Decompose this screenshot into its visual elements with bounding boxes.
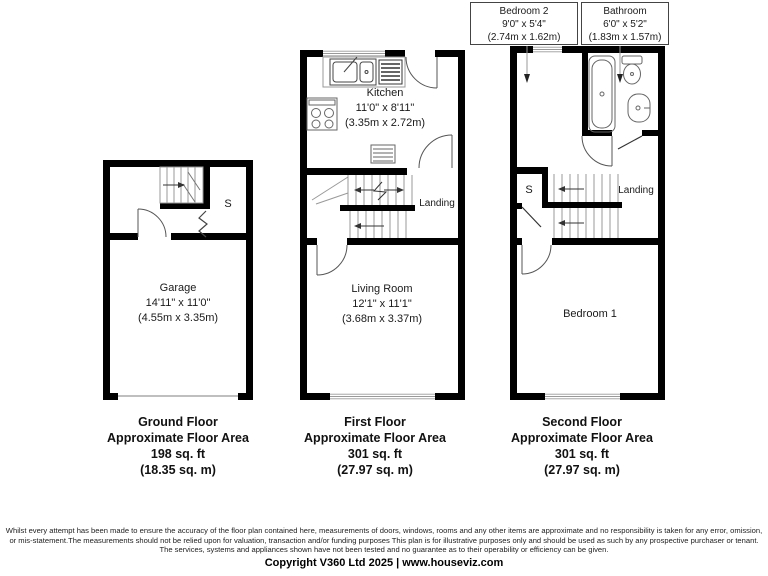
kitchen-landing-door-icon — [419, 135, 452, 168]
bedroom2-window — [533, 47, 562, 52]
appliance-icon — [371, 145, 395, 163]
kitchen-dims-metric: (3.35m x 2.72m) — [345, 117, 425, 129]
bathroom-callout-name: Bathroom — [582, 5, 668, 18]
first-floor-title: First Floor — [275, 414, 475, 430]
ground-floor-area-metric: (18.35 sq. m) — [78, 462, 278, 478]
garage-entry-door-icon — [138, 209, 166, 237]
kitchen-room-label: Kitchen 11'0" x 8'11" (3.35m x 2.72m) — [345, 87, 425, 129]
bedroom1-door-icon — [522, 245, 551, 274]
first-floor-summary: First Floor Approximate Floor Area 301 s… — [275, 414, 475, 478]
second-floor-walls — [510, 46, 665, 400]
angled-door-leaf — [618, 136, 642, 149]
ground-floor-summary: Ground Floor Approximate Floor Area 198 … — [78, 414, 278, 478]
living-room-door-icon — [317, 245, 347, 275]
bedroom2-callout-dims-imperial: 9'0" x 5'4" — [471, 18, 577, 31]
first-floor-area-metric: (27.97 sq. m) — [275, 462, 475, 478]
kitchen-window — [323, 51, 385, 56]
bathroom-callout-dims-imperial: 6'0" x 5'2" — [582, 18, 668, 31]
second-floor-area-metric: (27.97 sq. m) — [482, 462, 682, 478]
disclaimer-line-3: The services, systems and appliances sho… — [0, 545, 768, 555]
second-floor-plan: S Landing Bedroom 1 — [510, 46, 665, 400]
ground-floor-title: Ground Floor — [78, 414, 278, 430]
kitchen-dims-imperial: 11'0" x 8'11" — [356, 102, 415, 114]
hob-icon — [307, 98, 337, 130]
kitchen-entry-door-icon — [406, 57, 437, 88]
ground-floor-subtitle: Approximate Floor Area — [78, 430, 278, 446]
second-floor-summary: Second Floor Approximate Floor Area 301 … — [482, 414, 682, 478]
bedroom2-callout-name: Bedroom 2 — [471, 5, 577, 18]
first-floor-area-imperial: 301 sq. ft — [275, 446, 475, 462]
bedroom2-callout: Bedroom 2 9'0" x 5'4" (2.74m x 1.62m) — [470, 2, 578, 45]
living-room-name: Living Room — [351, 283, 412, 295]
ground-floor-walls — [103, 160, 253, 400]
living-room-label: Living Room 12'1" x 11'1" (3.68m x 3.37m… — [342, 283, 422, 325]
bedroom1-window — [545, 394, 620, 399]
disclaimer-line-1: Whilst every attempt has been made to en… — [0, 526, 768, 536]
living-room-dims-imperial: 12'1" x 11'1" — [352, 298, 412, 310]
garage-dims-imperial: 14'11" x 11'0" — [146, 297, 211, 309]
garage-dims-metric: (4.55m x 3.35m) — [138, 312, 218, 324]
ground-store-label: S — [224, 198, 231, 210]
kitchen-drainer-icon — [379, 60, 402, 84]
bathtub-icon — [589, 56, 615, 132]
second-floor-subtitle: Approximate Floor Area — [482, 430, 682, 446]
bedroom1-label: Bedroom 1 — [563, 308, 617, 320]
copyright-text: Copyright V360 Ltd 2025 | www.houseviz.c… — [0, 557, 768, 569]
ground-floor-area-imperial: 198 sq. ft — [78, 446, 278, 462]
bedroom2-callout-dims-metric: (2.74m x 1.62m) — [471, 31, 577, 44]
garage-room-label: Garage 14'11" x 11'0" (4.55m x 3.35m) — [138, 282, 218, 324]
washbasin-icon — [628, 94, 650, 122]
second-store-label: S — [525, 184, 532, 196]
second-floor-area-imperial: 301 sq. ft — [482, 446, 682, 462]
bathroom-callout: Bathroom 6'0" x 5'2" (1.83m x 1.57m) — [581, 2, 669, 45]
kitchen-sink-icon — [330, 57, 376, 85]
living-room-window — [330, 394, 435, 399]
store-door-leaf — [522, 207, 541, 227]
bathroom-door-icon — [582, 136, 612, 166]
living-room-dims-metric: (3.68m x 3.37m) — [342, 313, 422, 325]
footer: Whilst every attempt has been made to en… — [0, 526, 768, 569]
first-floor-subtitle: Approximate Floor Area — [275, 430, 475, 446]
bathroom-callout-dims-metric: (1.83m x 1.57m) — [582, 31, 668, 44]
garage-name: Garage — [160, 282, 197, 294]
toilet-icon — [622, 56, 642, 84]
second-landing-label: Landing — [618, 185, 654, 196]
ground-floor-plan: S Garage 14'11" x 11'0" (4.55m x 3.35m) — [103, 160, 253, 400]
second-floor-title: Second Floor — [482, 414, 682, 430]
first-floor-plan: Landing Kitchen 11'0" x 8'11" (3.35m x 2… — [300, 50, 465, 400]
disclaimer-line-2: or mis-statement.The measurements should… — [0, 536, 768, 546]
kitchen-name: Kitchen — [367, 87, 404, 99]
floorplan-page: Bedroom 2 9'0" x 5'4" (2.74m x 1.62m) Ba… — [0, 0, 768, 576]
first-landing-label: Landing — [419, 198, 455, 209]
